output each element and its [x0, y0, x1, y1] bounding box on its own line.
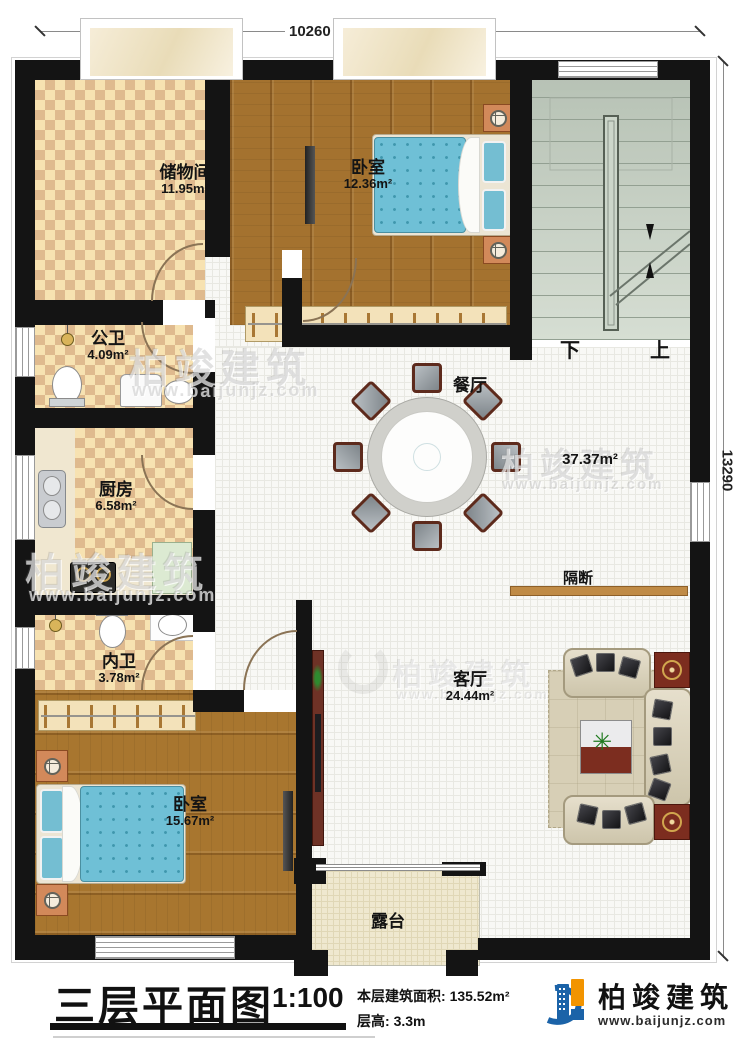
- bay-window-storage: [88, 26, 235, 78]
- floor-area-line: 本层建筑面积: 135.52m²: [357, 986, 510, 1006]
- watermark-site: www.baijunjz.com: [28, 584, 215, 605]
- wardrobe-rail: [41, 715, 195, 717]
- title-underline-thin: [53, 1036, 375, 1038]
- bedroom-main-nightstand: [36, 884, 68, 916]
- room-label-kitchen: 厨房 6.58m²: [95, 480, 136, 514]
- room-name: 内卫: [98, 652, 139, 671]
- wall-bottom-right: [478, 938, 710, 960]
- room-area: 3.78m²: [98, 671, 139, 686]
- side-table: [654, 652, 690, 688]
- wall-living-left: [296, 600, 312, 960]
- kitchen-sink-bowl: [43, 500, 61, 520]
- room-area: 15.67m²: [166, 814, 214, 829]
- room-name: 露台: [371, 912, 405, 931]
- room-name: 储物间: [160, 163, 211, 182]
- toilet-base: [49, 398, 85, 407]
- room-area: 11.95m²: [160, 182, 211, 197]
- room-name: 公卫: [87, 329, 128, 348]
- terrace-stub: [294, 950, 328, 976]
- lamp-icon: [44, 892, 61, 909]
- dining-table-center: [413, 443, 441, 471]
- room-name: 卧室: [166, 795, 214, 814]
- floor-height-label: 层高:: [357, 1013, 390, 1029]
- room-name: 厨房: [95, 480, 136, 499]
- sofa-cushion: [596, 653, 615, 672]
- floor-plan-canvas: ✳ 柏竣建筑 www.baijunjz.com 柏竣建筑 ww: [0, 0, 750, 1046]
- wall-stairs-left: [510, 60, 532, 360]
- brand-logo-icon: [540, 976, 592, 1034]
- door-gap-bedroom-main: [244, 690, 296, 712]
- window-hall-right: [690, 482, 710, 542]
- lamp-icon: [490, 242, 507, 259]
- bay-window-bedroom: [341, 26, 488, 78]
- bedroom-main-nightstand: [36, 750, 68, 782]
- window-public-bath: [15, 327, 35, 377]
- lamp-icon: [44, 758, 61, 775]
- sofa-cushion: [576, 803, 599, 826]
- cabinet-plant-icon: [312, 664, 323, 692]
- wall-bath1-bottom: [15, 408, 195, 428]
- sofa-cushion: [653, 727, 672, 746]
- partition-bar: [510, 586, 688, 596]
- sofa-cushion: [651, 698, 673, 720]
- lamp-icon: [490, 110, 507, 127]
- room-label-bedroom-top: 卧室 12.36m²: [344, 158, 392, 192]
- title-underline: [50, 1023, 346, 1030]
- hall-area-label: 37.37m²: [562, 452, 618, 469]
- brand-site: www.baijunjz.com: [598, 1013, 726, 1028]
- bedroom-top-nightstand: [483, 104, 513, 132]
- window-inner-bath: [15, 627, 35, 669]
- wall-storage-right: [205, 60, 230, 257]
- dining-chair: [412, 363, 442, 393]
- dining-chair: [333, 442, 363, 472]
- bedroom-top-bed-sheet: [458, 137, 480, 233]
- stairs-detail: [532, 78, 690, 340]
- room-name: 卧室: [344, 158, 392, 177]
- room-area: 6.58m²: [95, 499, 136, 514]
- dining-chair: [412, 521, 442, 551]
- partition-label: 隔断: [563, 571, 593, 588]
- dimension-top-label: 10260: [285, 23, 335, 40]
- dimension-line-right: [723, 62, 724, 958]
- window-bedroom-main: [95, 936, 235, 959]
- bedroom-main-pillow: [40, 836, 64, 880]
- floor-area-label: 本层建筑面积:: [357, 988, 446, 1004]
- stairs-down-label: 下: [560, 340, 580, 362]
- terrace-stub: [294, 858, 326, 884]
- plan-scale: 1:100: [272, 982, 344, 1014]
- side-table: [654, 804, 690, 840]
- room-name: 客厅: [446, 670, 494, 689]
- room-label-public-bath: 公卫 4.09m²: [87, 329, 128, 363]
- dimension-right-label: 13290: [718, 446, 735, 496]
- wall-bedroom-main-top: [193, 690, 244, 712]
- door-gap-inner-bath: [193, 632, 215, 690]
- terrace-stub: [446, 950, 478, 976]
- window-stairs-top: [558, 61, 658, 78]
- floor-area-value: 135.52m²: [450, 988, 510, 1004]
- window-kitchen: [15, 455, 35, 540]
- bedroom-top-pillow: [482, 141, 506, 183]
- brand-name: 柏竣建筑: [598, 976, 734, 1016]
- room-label-storage: 储物间 11.95m²: [160, 163, 211, 197]
- room-label-bedroom-main: 卧室 15.67m²: [166, 795, 214, 829]
- floor-height-value: 3.3m: [394, 1013, 426, 1029]
- terrace-sliding-door: [316, 864, 480, 871]
- door-gap-kitchen: [193, 455, 215, 510]
- sink-icon: [158, 614, 187, 636]
- floor-height-line: 层高: 3.3m: [357, 1011, 425, 1031]
- living-tv: [315, 714, 321, 792]
- compass-medallion-icon: [662, 812, 682, 832]
- bedroom-main-tv: [283, 791, 293, 871]
- room-label-living: 客厅 24.44m²: [446, 670, 494, 704]
- kitchen-sink-bowl: [43, 476, 61, 496]
- bedroom-top-nightstand: [483, 236, 513, 264]
- watermark-site: www.baijunjz.com: [132, 380, 319, 401]
- compass-medallion-icon: [662, 660, 682, 680]
- bedroom-main-pillow: [40, 789, 64, 833]
- door-gap-bedroom-top: [282, 250, 302, 278]
- pendant-lamp-icon: [49, 619, 62, 632]
- toilet-icon: [99, 615, 126, 648]
- sofa-cushion: [649, 753, 672, 776]
- room-label-inner-bath: 内卫 3.78m²: [98, 652, 139, 686]
- wall-bedroom-top-bottom: [282, 325, 530, 347]
- room-area: 24.44m²: [446, 689, 494, 704]
- bedroom-main-wardrobe: [38, 700, 196, 731]
- room-name: 餐厅: [453, 376, 487, 395]
- pendant-lamp-icon: [61, 333, 74, 346]
- sofa-cushion: [602, 810, 621, 829]
- room-label-terrace: 露台: [371, 912, 405, 931]
- room-area: 4.09m²: [87, 348, 128, 363]
- bedroom-top-pillow: [482, 189, 506, 231]
- plant-icon: ✳: [592, 731, 612, 755]
- bedroom-top-tv: [305, 146, 315, 224]
- room-label-dining: 餐厅: [453, 376, 487, 395]
- stairs-up-label: 上: [650, 340, 670, 362]
- watermark-site: www.baijunjz.com: [502, 476, 663, 493]
- room-area: 12.36m²: [344, 177, 392, 192]
- watermark-swirl-icon: [338, 642, 388, 694]
